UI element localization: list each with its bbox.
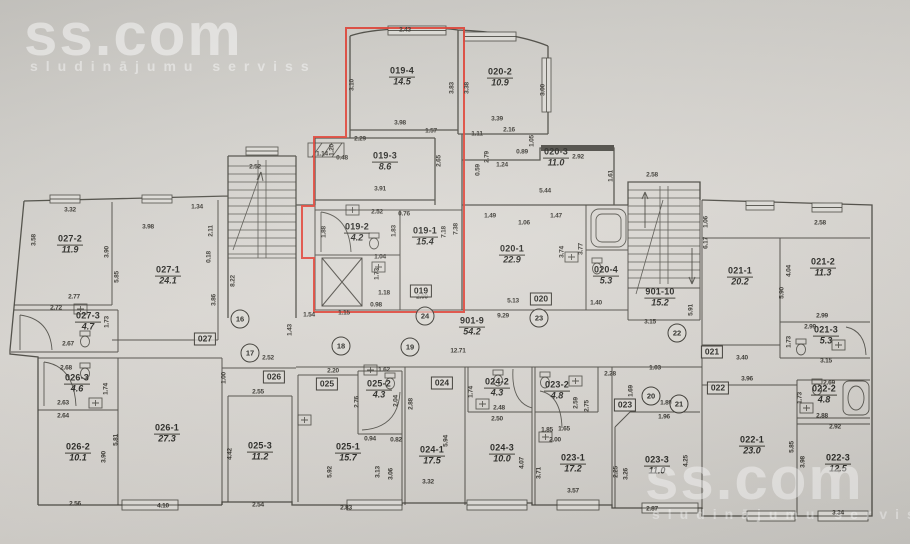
dimension-label: 2.75 bbox=[584, 400, 591, 412]
dimension-label: 3.58 bbox=[31, 234, 38, 246]
room-area: 22.9 bbox=[499, 256, 525, 266]
room-label-022-3: 022-312.5 bbox=[825, 454, 851, 475]
dimension-label: 2.00 bbox=[549, 437, 561, 444]
apartment-badge-019: 019 bbox=[410, 285, 432, 298]
dimension-label: 0.89 bbox=[516, 149, 528, 156]
room-area: 17.5 bbox=[419, 457, 445, 467]
axis-marker-22: 22 bbox=[668, 324, 687, 343]
dimension-label: 2.54 bbox=[252, 502, 264, 509]
room-area: 15.2 bbox=[644, 299, 675, 309]
dimension-label: 1.43 bbox=[287, 324, 294, 336]
dimension-label: 1.85 bbox=[541, 427, 553, 434]
dimension-label: 0.94 bbox=[364, 436, 376, 443]
dimension-label: 1.69 bbox=[628, 385, 635, 397]
dimension-label: 1.74 bbox=[103, 383, 110, 395]
room-area: 4.8 bbox=[811, 396, 837, 406]
dimension-label: 5.44 bbox=[539, 188, 551, 195]
dimension-label: 2.25 bbox=[613, 466, 620, 478]
dimension-label: 3.10 bbox=[349, 79, 356, 91]
room-area: 4.3 bbox=[366, 391, 392, 401]
room-area: 11.3 bbox=[810, 269, 836, 279]
room-area: 11.0 bbox=[543, 159, 569, 169]
room-label-019-1: 019-115.4 bbox=[412, 227, 438, 248]
dimension-label: 1.61 bbox=[608, 170, 615, 182]
dimension-label: 5.92 bbox=[327, 466, 334, 478]
dimension-label: 1.18 bbox=[378, 290, 390, 297]
dimension-label: 2.52 bbox=[249, 164, 261, 171]
room-label-027-3: 027-34.7 bbox=[75, 312, 101, 333]
room-label-023-1: 023-117.2 bbox=[560, 454, 586, 475]
room-label-020-3: 020-311.0 bbox=[543, 148, 569, 169]
dimension-label: 2.59 bbox=[573, 397, 580, 409]
dimension-label: 3.15 bbox=[644, 319, 656, 326]
room-area: 10.9 bbox=[487, 79, 513, 89]
apartment-badge-024: 024 bbox=[431, 377, 453, 390]
room-label-021-1: 021-120.2 bbox=[727, 267, 753, 288]
dimension-label: 1.49 bbox=[484, 213, 496, 220]
room-area: 10.1 bbox=[65, 454, 91, 464]
room-area: 11.0 bbox=[644, 467, 670, 477]
room-label-020-1: 020-122.9 bbox=[499, 245, 525, 266]
axis-marker-18: 18 bbox=[332, 337, 351, 356]
dimension-label: 3.91 bbox=[374, 186, 386, 193]
dimension-label: 1.34 bbox=[191, 204, 203, 211]
dimension-label: 2.50 bbox=[491, 416, 503, 423]
room-area: 17.2 bbox=[560, 465, 586, 475]
dimension-label: 0.82 bbox=[390, 437, 402, 444]
room-area: 24.1 bbox=[155, 277, 181, 287]
dimension-label: 3.38 bbox=[464, 82, 471, 94]
dimension-label: 6.17 bbox=[703, 237, 710, 249]
floorplan-scan: ss.com sludinājumu serviss bbox=[0, 0, 910, 544]
room-area: 10.0 bbox=[489, 455, 515, 465]
dimension-label: 3.15 bbox=[820, 358, 832, 365]
room-label-021-3: 021-35.3 bbox=[813, 326, 839, 347]
axis-marker-20: 20 bbox=[642, 387, 661, 406]
dimension-label: 2.52 bbox=[371, 209, 383, 216]
dimension-label: 5.94 bbox=[443, 435, 450, 447]
dimension-label: 5.85 bbox=[114, 271, 121, 283]
dimension-label: 1.57 bbox=[425, 128, 437, 135]
room-label-027-2: 027-211.9 bbox=[57, 235, 83, 256]
dimension-label: 1.65 bbox=[558, 426, 570, 433]
dimension-label: 0.48 bbox=[336, 155, 348, 162]
room-area: 8.6 bbox=[372, 163, 398, 173]
dimension-label: 1.73 bbox=[797, 392, 804, 404]
dimension-label: 1.54 bbox=[303, 312, 315, 319]
room-area: 20.2 bbox=[727, 278, 753, 288]
room-label-027-1: 027-124.1 bbox=[155, 266, 181, 287]
dimension-label: 7.18 bbox=[441, 226, 448, 238]
dimension-label: 1.11 bbox=[471, 131, 483, 138]
room-area: 23.0 bbox=[739, 447, 765, 457]
room-label-020-4: 020-45.3 bbox=[593, 266, 619, 287]
room-area: 15.4 bbox=[412, 238, 438, 248]
dimension-label: 12.71 bbox=[450, 348, 465, 355]
dimension-label: 2.88 bbox=[816, 413, 828, 420]
dimension-label: 3.74 bbox=[559, 246, 566, 258]
dimension-label: 2.99 bbox=[804, 324, 816, 331]
dimension-label: 1.62 bbox=[378, 367, 390, 374]
dimension-label: 1.00 bbox=[221, 372, 228, 384]
axis-marker-21: 21 bbox=[670, 395, 689, 414]
room-label-026-1: 026-127.3 bbox=[154, 424, 180, 445]
axis-marker-17: 17 bbox=[241, 344, 260, 363]
room-area: 27.3 bbox=[154, 435, 180, 445]
room-label-019-2: 019-24.2 bbox=[344, 223, 370, 244]
dimension-label: 5.85 bbox=[789, 441, 796, 453]
dimension-label: 2.87 bbox=[646, 506, 658, 513]
dimension-label: 2.69 bbox=[823, 380, 835, 387]
dimension-label: 1.73 bbox=[786, 336, 793, 348]
dimension-label: 3.77 bbox=[578, 243, 585, 255]
room-area: 12.5 bbox=[825, 465, 851, 475]
dimension-label: 2.48 bbox=[493, 405, 505, 412]
dimension-label: 3.86 bbox=[211, 294, 218, 306]
axis-marker-16: 16 bbox=[231, 310, 250, 329]
dimension-label: 2.76 bbox=[354, 396, 361, 408]
dimension-label: 1.47 bbox=[550, 213, 562, 220]
dimension-label: 3.98 bbox=[142, 224, 154, 231]
dimension-label: 5.81 bbox=[113, 434, 120, 446]
dimension-label: 4.10 bbox=[157, 503, 169, 510]
dimension-label: 2.77 bbox=[68, 294, 80, 301]
apartment-badge-022: 022 bbox=[707, 382, 729, 395]
dimension-label: 2.88 bbox=[408, 398, 415, 410]
dimension-label: 9.29 bbox=[497, 313, 509, 320]
dimension-label: 0.98 bbox=[370, 302, 382, 309]
dimension-label: 2.79 bbox=[484, 151, 491, 163]
dimension-label: 4.42 bbox=[227, 448, 234, 460]
dimension-label: 1.83 bbox=[391, 225, 398, 237]
dimension-label: 1.73 bbox=[374, 268, 381, 280]
room-label-023-3: 023-311.0 bbox=[644, 456, 670, 477]
room-area: 5.3 bbox=[813, 337, 839, 347]
dimension-label: 1.24 bbox=[496, 162, 508, 169]
dimension-label: 5.13 bbox=[507, 298, 519, 305]
dimension-label: 5.91 bbox=[688, 304, 695, 316]
dimension-label: 3.83 bbox=[449, 82, 456, 94]
dimension-label: 3.40 bbox=[736, 355, 748, 362]
apartment-badge-027: 027 bbox=[194, 333, 216, 346]
dimension-label: 1.40 bbox=[590, 300, 602, 307]
dimension-label: 2.55 bbox=[252, 389, 264, 396]
dimension-label: 3.13 bbox=[375, 466, 382, 478]
dimension-label: 2.56 bbox=[69, 501, 81, 508]
room-label-901-10: 901-1015.2 bbox=[644, 288, 675, 309]
dimension-label: 1.14 bbox=[316, 151, 328, 158]
dimension-label: 0.76 bbox=[398, 211, 410, 218]
plan-labels: 019-414.5020-210.9019-38.6020-311.0019-2… bbox=[0, 0, 910, 544]
dimension-label: 1.06 bbox=[703, 216, 710, 228]
dimension-label: 1.05 bbox=[529, 135, 536, 147]
dimension-label: 3.32 bbox=[422, 479, 434, 486]
room-label-026-2: 026-210.1 bbox=[65, 443, 91, 464]
axis-marker-19: 19 bbox=[401, 338, 420, 357]
dimension-label: 2.29 bbox=[354, 136, 366, 143]
dimension-label: 2.58 bbox=[646, 172, 658, 179]
room-area: 4.3 bbox=[484, 389, 510, 399]
dimension-label: 7.38 bbox=[453, 223, 460, 235]
room-area: 4.2 bbox=[344, 234, 370, 244]
dimension-label: 0.59 bbox=[475, 164, 482, 176]
room-area: 14.5 bbox=[389, 78, 415, 88]
room-area: 15.7 bbox=[335, 454, 361, 464]
dimension-label: 2.28 bbox=[604, 371, 616, 378]
room-area: 11.9 bbox=[57, 246, 83, 256]
dimension-label: 1.06 bbox=[518, 220, 530, 227]
room-label-022-2: 022-24.8 bbox=[811, 385, 837, 406]
room-label-020-2: 020-210.9 bbox=[487, 68, 513, 89]
room-label-019-3: 019-38.6 bbox=[372, 152, 398, 173]
dimension-label: 3.98 bbox=[800, 456, 807, 468]
dimension-label: 3.34 bbox=[832, 510, 844, 517]
dimension-label: 1.20 bbox=[329, 144, 336, 156]
axis-marker-24: 24 bbox=[416, 307, 435, 326]
dimension-label: 2.68 bbox=[60, 365, 72, 372]
dimension-label: 2.65 bbox=[436, 155, 443, 167]
axis-marker-23: 23 bbox=[530, 309, 549, 328]
room-label-021-2: 021-211.3 bbox=[810, 258, 836, 279]
dimension-label: 1.74 bbox=[468, 386, 475, 398]
dimension-label: 0.18 bbox=[206, 251, 213, 263]
dimension-label: 2.92 bbox=[572, 154, 584, 161]
dimension-label: 3.39 bbox=[491, 116, 503, 123]
room-area: 4.8 bbox=[544, 392, 570, 402]
dimension-label: 3.71 bbox=[536, 467, 543, 479]
dimension-label: 2.04 bbox=[393, 395, 400, 407]
apartment-badge-026: 026 bbox=[263, 371, 285, 384]
room-area: 5.3 bbox=[593, 277, 619, 287]
dimension-label: 2.63 bbox=[57, 400, 69, 407]
dimension-label: 4.04 bbox=[786, 265, 793, 277]
dimension-label: 1.04 bbox=[374, 254, 386, 261]
room-label-022-1: 022-123.0 bbox=[739, 436, 765, 457]
dimension-label: 2.83 bbox=[340, 505, 352, 512]
room-label-023-2: 023-24.8 bbox=[544, 381, 570, 402]
room-label-026-3: 026-34.6 bbox=[64, 374, 90, 395]
room-area: 4.7 bbox=[75, 323, 101, 333]
apartment-badge-021: 021 bbox=[701, 346, 723, 359]
dimension-label: 1.03 bbox=[649, 365, 661, 372]
dimension-label: 2.16 bbox=[503, 127, 515, 134]
room-area: 54.2 bbox=[459, 328, 485, 338]
dimension-label: 3.32 bbox=[64, 207, 76, 214]
dimension-label: 2.52 bbox=[262, 355, 274, 362]
room-label-024-2: 024-24.3 bbox=[484, 378, 510, 399]
dimension-label: 2.58 bbox=[814, 220, 826, 227]
room-label-025-3: 025-311.2 bbox=[247, 442, 273, 463]
dimension-label: 3.06 bbox=[388, 468, 395, 480]
apartment-badge-020: 020 bbox=[530, 293, 552, 306]
dimension-label: 3.57 bbox=[567, 488, 579, 495]
dimension-label: 5.90 bbox=[779, 287, 786, 299]
dimension-label: 3.90 bbox=[101, 451, 108, 463]
dimension-label: 3.90 bbox=[104, 246, 111, 258]
dimension-label: 4.25 bbox=[683, 455, 690, 467]
dimension-label: 3.96 bbox=[741, 376, 753, 383]
dimension-label: 3.98 bbox=[394, 120, 406, 127]
room-area: 11.2 bbox=[247, 453, 273, 463]
apartment-badge-023: 023 bbox=[614, 399, 636, 412]
dimension-label: 8.22 bbox=[230, 275, 237, 287]
room-label-024-1: 024-117.5 bbox=[419, 446, 445, 467]
room-label-024-3: 024-310.0 bbox=[489, 444, 515, 465]
dimension-label: 2.92 bbox=[829, 424, 841, 431]
dimension-label: 1.88 bbox=[321, 226, 328, 238]
dimension-label: 1.96 bbox=[658, 414, 670, 421]
dimension-label: 1.15 bbox=[338, 310, 350, 317]
room-label-025-2: 025-24.3 bbox=[366, 380, 392, 401]
dimension-label: 2.20 bbox=[327, 368, 339, 375]
apartment-badge-025: 025 bbox=[316, 378, 338, 391]
room-label-025-1: 025-115.7 bbox=[335, 443, 361, 464]
dimension-label: 2.64 bbox=[57, 413, 69, 420]
room-area: 4.6 bbox=[64, 385, 90, 395]
dimension-label: 2.67 bbox=[62, 341, 74, 348]
dimension-label: 3.26 bbox=[623, 468, 630, 480]
dimension-label: 2.11 bbox=[208, 225, 215, 237]
dimension-label: 4.07 bbox=[519, 457, 526, 469]
dimension-label: 1.73 bbox=[104, 316, 111, 328]
dimension-label: 2.43 bbox=[399, 27, 411, 34]
room-label-019-4: 019-414.5 bbox=[389, 67, 415, 88]
dimension-label: 2.99 bbox=[816, 313, 828, 320]
room-label-901-9: 901-954.2 bbox=[459, 317, 485, 338]
dimension-label: 3.00 bbox=[540, 84, 547, 96]
dimension-label: 2.72 bbox=[50, 305, 62, 312]
